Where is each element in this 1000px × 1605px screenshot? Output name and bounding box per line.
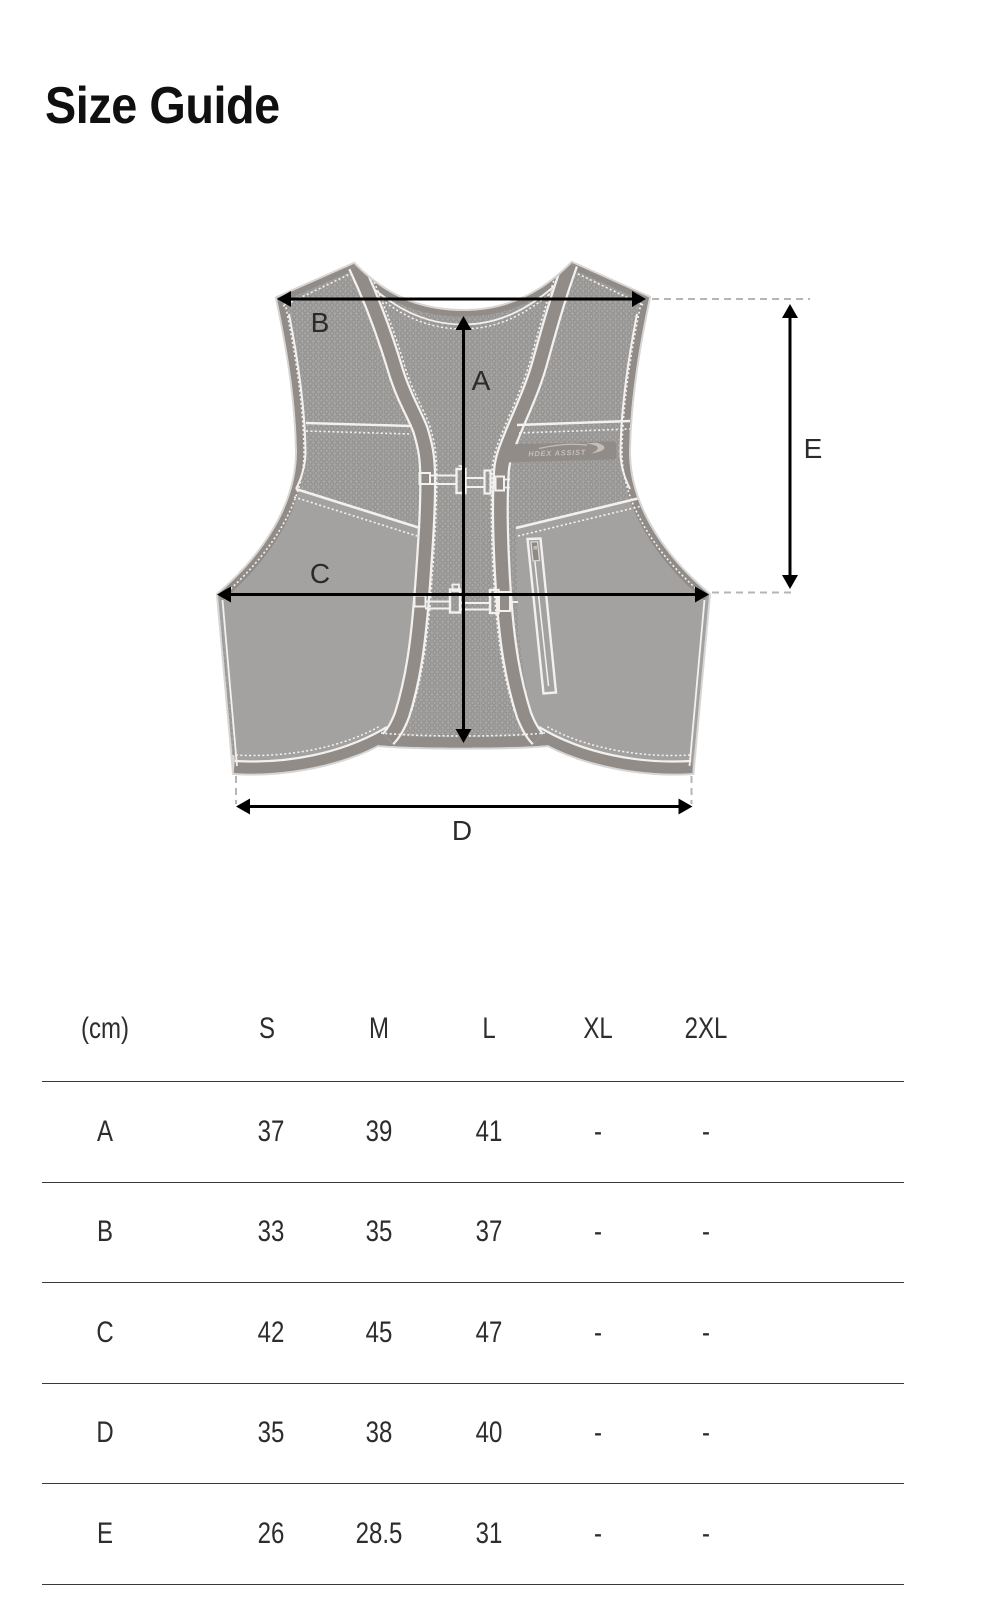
svg-text:C: C [310,558,330,589]
svg-text:E: E [804,433,823,464]
svg-text:A: A [472,365,491,396]
svg-text:B: B [311,307,330,338]
svg-text:HDEX ASSIST: HDEX ASSIST [528,448,587,459]
svg-text:D: D [452,815,472,846]
